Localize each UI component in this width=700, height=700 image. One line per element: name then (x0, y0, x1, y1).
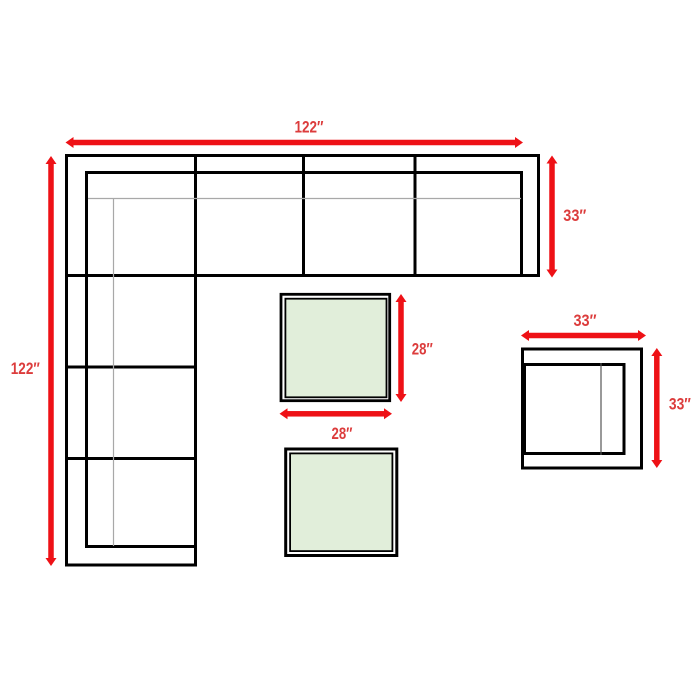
svg-text:28″: 28″ (332, 424, 353, 443)
svg-text:28″: 28″ (412, 340, 433, 359)
svg-text:33″: 33″ (574, 311, 597, 330)
svg-text:33″: 33″ (563, 206, 586, 225)
svg-text:122″: 122″ (295, 118, 324, 137)
svg-text:122″: 122″ (11, 359, 40, 378)
svg-text:33″: 33″ (669, 394, 691, 413)
